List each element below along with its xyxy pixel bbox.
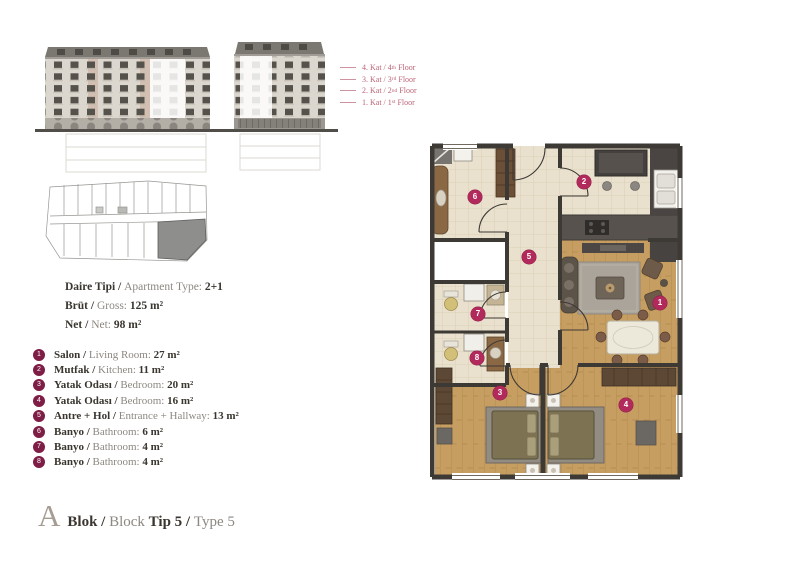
brochure-page: 4. Kat / 4th Floor 3. Kat / 3rd Floor 2.… bbox=[0, 0, 800, 565]
room-number-badge: 4 bbox=[33, 395, 45, 407]
building-elevation-side bbox=[225, 20, 345, 180]
floor-label-tr: 2. Kat / bbox=[362, 86, 388, 95]
room-number-badge: 3 bbox=[33, 379, 45, 391]
floor-legend-row: 1. Kat / 1st Floor bbox=[340, 97, 417, 109]
list-item: 6Banyo / Bathroom: 6 m² bbox=[33, 424, 239, 439]
room-marker: 6 bbox=[468, 190, 482, 204]
floor-legend-row: 2. Kat / 2nd Floor bbox=[340, 85, 417, 97]
list-item: 2Mutfak / Kitchen: 11 m² bbox=[33, 362, 239, 377]
room-marker: 8 bbox=[470, 351, 484, 365]
floor-line-icon bbox=[340, 102, 356, 103]
room-number-badge: 8 bbox=[33, 456, 45, 468]
highlighted-unit bbox=[158, 219, 206, 260]
room-marker: 7 bbox=[471, 307, 485, 321]
list-item: 4Yatak Odası / Bedroom: 16 m² bbox=[33, 393, 239, 408]
info-row: Brüt / Gross: 125 m² bbox=[65, 300, 223, 319]
info-row: Daire Tipi / Apartment Type: 2+1 bbox=[65, 281, 223, 300]
room-marker: 5 bbox=[522, 250, 536, 264]
floor-line-icon bbox=[340, 67, 356, 68]
room-marker: 3 bbox=[493, 386, 507, 400]
apartment-info: Daire Tipi / Apartment Type: 2+1 Brüt / … bbox=[65, 281, 223, 338]
room-marker: 1 bbox=[653, 296, 667, 310]
room-number-badge: 6 bbox=[33, 426, 45, 438]
floor-label-tr: 1. Kat / bbox=[362, 98, 388, 107]
room-number-badge: 5 bbox=[33, 410, 45, 422]
floor-legend: 4. Kat / 4th Floor 3. Kat / 3rd Floor 2.… bbox=[340, 62, 417, 108]
highlighted-section bbox=[240, 56, 272, 118]
room-number-badge: 7 bbox=[33, 441, 45, 453]
list-item: 1Salon / Living Room: 27 m² bbox=[33, 347, 239, 362]
floor-legend-row: 3. Kat / 3rd Floor bbox=[340, 74, 417, 86]
info-row: Net / Net: 98 m² bbox=[65, 319, 223, 338]
floor-line-icon bbox=[340, 90, 356, 91]
list-item: 7Banyo / Bathroom: 4 m² bbox=[33, 439, 239, 454]
floor-line-icon bbox=[340, 79, 356, 80]
list-item: 5Antre + Hol / Entrance + Hallway: 13 m² bbox=[33, 409, 239, 424]
block-letter: A bbox=[38, 498, 60, 534]
key-plan bbox=[40, 178, 212, 268]
room-number-badge: 1 bbox=[33, 349, 45, 361]
floor-label-tr: 4. Kat / bbox=[362, 63, 388, 72]
room-list: 1Salon / Living Room: 27 m² 2Mutfak / Ki… bbox=[33, 347, 239, 470]
room-marker: 2 bbox=[577, 175, 591, 189]
floor-label-tr: 3. Kat / bbox=[362, 75, 388, 84]
building-elevation-front bbox=[35, 20, 230, 180]
floor-legend-row: 4. Kat / 4th Floor bbox=[340, 62, 417, 74]
page-title: ABlok / Block Tip 5 / Type 5 bbox=[38, 498, 235, 534]
list-item: 3Yatak Odası / Bedroom: 20 m² bbox=[33, 378, 239, 393]
list-item: 8Banyo / Bathroom: 4 m² bbox=[33, 455, 239, 470]
room-marker: 4 bbox=[619, 398, 633, 412]
highlighted-section bbox=[150, 59, 185, 118]
floor-plan bbox=[430, 138, 688, 483]
room-number-badge: 2 bbox=[33, 364, 45, 376]
